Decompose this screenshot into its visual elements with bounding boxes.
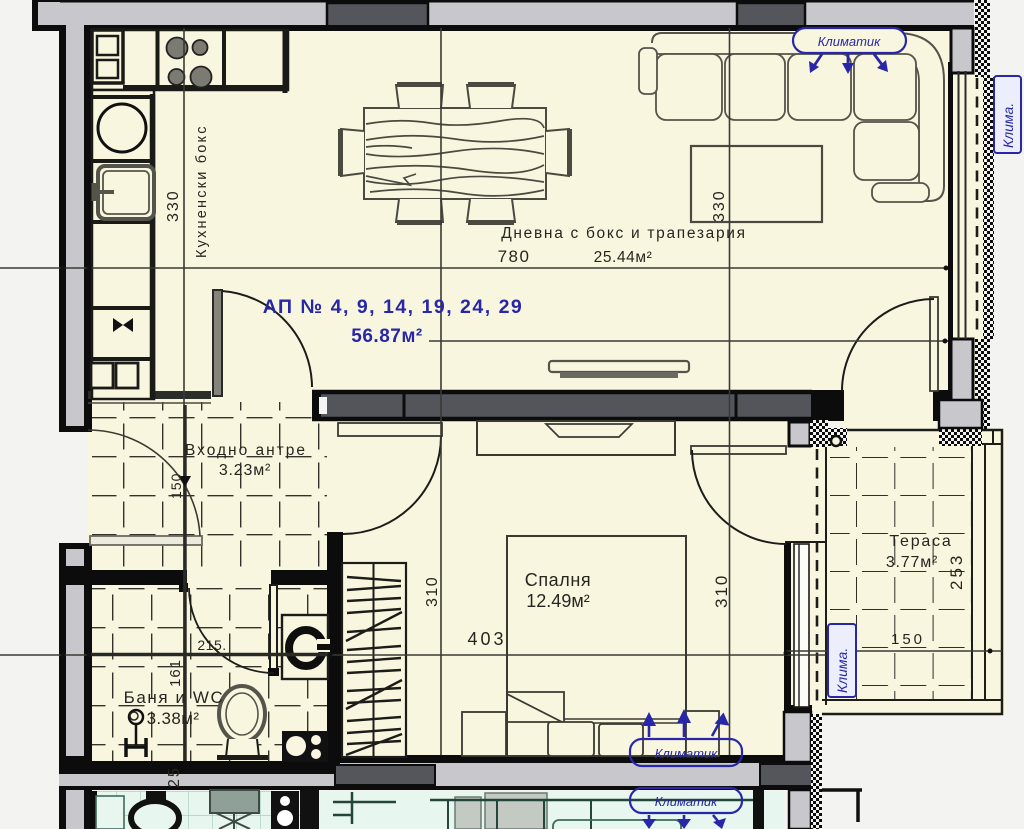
svg-text:3.38м²: 3.38м²	[147, 709, 200, 728]
svg-text:АП № 4, 9, 14, 19, 24, 29: АП № 4, 9, 14, 19, 24, 29	[263, 296, 524, 318]
svg-text:Баня и WC: Баня и WC	[124, 688, 225, 707]
svg-text:25.44м²: 25.44м²	[594, 249, 653, 266]
svg-text:150: 150	[891, 631, 925, 648]
svg-text:310: 310	[424, 576, 441, 607]
svg-text:Тераса: Тераса	[889, 533, 952, 550]
svg-text:Входно антре: Входно антре	[185, 442, 307, 459]
svg-text:Дневна с бокс и трапезария: Дневна с бокс и трапезария	[501, 225, 747, 242]
svg-text:161: 161	[167, 659, 184, 687]
svg-text:310: 310	[712, 574, 731, 608]
svg-text:780: 780	[498, 247, 531, 266]
svg-text:150: 150	[168, 473, 184, 499]
svg-text:12.49м²: 12.49м²	[526, 591, 589, 611]
svg-text:215.: 215.	[197, 637, 226, 653]
svg-text:25: 25	[166, 766, 183, 788]
svg-text:330: 330	[711, 189, 728, 222]
svg-text:3.77м²: 3.77м²	[886, 554, 938, 571]
svg-text:Клима.: Клима.	[1000, 103, 1016, 148]
svg-text:Климатик: Климатик	[655, 794, 718, 809]
svg-text:Кухненски бокс: Кухненски бокс	[194, 124, 210, 258]
svg-text:Клима.: Клима.	[834, 648, 850, 693]
svg-text:Климатик: Климатик	[655, 746, 718, 761]
svg-text:56.87м²: 56.87м²	[351, 326, 422, 347]
svg-text:253: 253	[947, 553, 966, 590]
svg-text:Климатик: Климатик	[818, 34, 881, 49]
svg-text:403: 403	[467, 629, 506, 649]
svg-text:330: 330	[165, 189, 182, 222]
svg-text:3.23м²: 3.23м²	[219, 462, 271, 479]
svg-text:Спалня: Спалня	[525, 570, 592, 590]
